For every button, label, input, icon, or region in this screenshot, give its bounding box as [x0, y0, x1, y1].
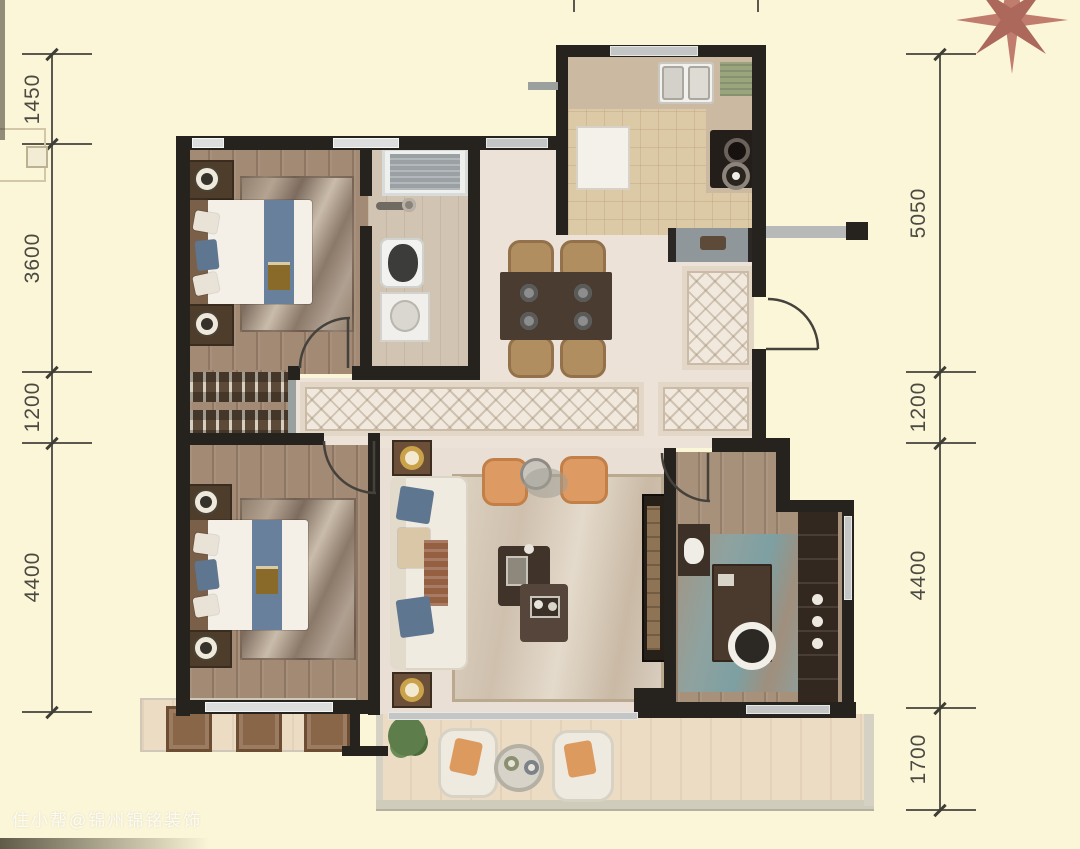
- bookshelf-decor-3: [812, 638, 823, 649]
- dining-chair-4: [560, 336, 606, 378]
- tv-console-wood: [647, 506, 660, 650]
- dim-tick: [22, 53, 92, 55]
- study-desk-item: [718, 574, 734, 586]
- toilet-lid: [388, 244, 418, 282]
- window-study-east: [844, 516, 852, 600]
- wall-west: [176, 136, 190, 716]
- dim-line-left: [51, 54, 53, 713]
- dim-label-left-2: 1200: [21, 382, 45, 433]
- bedroom1-lamp-bottom-icon: [196, 313, 218, 335]
- sofa-pillow-blue-1: [396, 486, 435, 525]
- bedroom2-lamp-top-icon: [195, 491, 217, 513]
- wall-small-balcony-v: [350, 704, 360, 752]
- wardrobe-rack-top: [190, 372, 288, 402]
- wall-hall-top-b: [352, 366, 480, 380]
- bedroom2-pillow-1: [193, 532, 220, 555]
- dim-label-right-3: 1700: [907, 734, 931, 785]
- stove-burner-2: [722, 162, 750, 190]
- window-dining-north: [486, 138, 548, 148]
- wall-east-upper: [752, 45, 766, 297]
- wall-bedroom2-north: [176, 433, 324, 445]
- dim-top-tick-b: [757, 0, 759, 12]
- bedroom2-lamp-bottom-icon: [195, 637, 217, 659]
- window-bedroom1-a: [192, 138, 224, 148]
- bookshelf-decor-2: [812, 616, 823, 627]
- dim-tick: [22, 371, 92, 373]
- wall-bathroom-east: [468, 150, 480, 380]
- dim-tick: [22, 711, 92, 713]
- dim-label-right-0: 5050: [907, 188, 931, 239]
- balcony-parapet-left: [376, 714, 383, 806]
- window-study-south: [746, 705, 830, 714]
- dim-label-right-2: 4400: [907, 550, 931, 601]
- wall-small-balcony-h: [342, 746, 388, 756]
- wall-hall-top-a: [288, 366, 300, 380]
- wall-bath-divider-b: [360, 226, 372, 372]
- floor-plan-canvas: 1450 3600 1200 4400 5050 1200 4400 1700 …: [0, 0, 1080, 849]
- window-bedroom2-south: [205, 702, 333, 712]
- coffee-table-tray-1: [506, 556, 528, 586]
- stove-burner-1: [724, 138, 750, 164]
- bedroom1-bed: [206, 200, 312, 304]
- sink-basin-icon: [390, 300, 420, 332]
- dining-place-1: [520, 284, 538, 302]
- balcony-chair-2-cushion: [563, 740, 596, 778]
- balcony-plate-2: [524, 760, 539, 775]
- bedroom2-bed-tray: [256, 566, 278, 594]
- edge-symbol-square: [26, 146, 48, 168]
- dim-top-tick-a: [573, 0, 575, 12]
- dim-line-right: [939, 54, 941, 811]
- dining-place-4: [574, 312, 592, 330]
- edge-shadow-left: [0, 0, 5, 140]
- wall-bedroom2-east: [368, 433, 380, 715]
- entry-rug: [682, 266, 754, 370]
- window-bedroom1-b: [333, 138, 399, 148]
- ledge-entry-cap: [846, 222, 868, 240]
- dim-label-left-3: 4400: [21, 552, 45, 603]
- bedroom1-pillow-1: [192, 210, 219, 234]
- study-bookshelf: [798, 512, 838, 704]
- dining-place-2: [574, 284, 592, 302]
- coffee-table-cup-2: [534, 600, 543, 609]
- sink-basin-left: [662, 66, 684, 100]
- balcony-sliding-door: [388, 712, 638, 720]
- coffee-table-cup-1: [524, 544, 534, 554]
- dim-label-right-1: 1200: [907, 382, 931, 433]
- dining-table: [500, 272, 612, 340]
- dining-chair-3: [508, 336, 554, 378]
- window-kitchen: [610, 46, 698, 56]
- study-desk-chair-icon: [728, 622, 776, 670]
- hall-runner-rug-a: [300, 382, 644, 436]
- balcony-plant-icon: [388, 716, 426, 756]
- dining-place-3: [520, 312, 538, 330]
- edge-shadow-bottom: [0, 838, 210, 849]
- bedroom1-bed-tray: [268, 262, 290, 290]
- balcony-parapet-right: [864, 714, 874, 806]
- bedroom1-lamp-top-icon: [196, 168, 218, 190]
- ledge-entry: [766, 226, 850, 238]
- sink-basin-right: [688, 66, 710, 100]
- wall-kitchen-west: [556, 45, 568, 235]
- dim-tick: [22, 442, 92, 444]
- entry-door-arc: [766, 299, 818, 349]
- wall-bath-divider-a: [360, 150, 372, 196]
- bathtub-icon: [390, 154, 460, 190]
- entry-cabinet-decor: [700, 236, 726, 250]
- balcony-plate-1: [504, 756, 519, 771]
- bookshelf-decor-1: [812, 594, 823, 605]
- coffee-table-cup-3: [548, 602, 557, 611]
- kitchen-table: [578, 128, 628, 188]
- dim-label-left-1: 3600: [21, 233, 45, 284]
- ledge-kitchen-west: [528, 82, 558, 90]
- dim-label-left-0: 1450: [21, 74, 45, 125]
- kitchen-drainboard: [720, 62, 752, 96]
- watermark-text: 住小帮@锦州锦铭装饰: [12, 806, 202, 831]
- wall-east-below-door: [752, 349, 766, 448]
- living-lamp-top-icon: [400, 446, 424, 470]
- balcony-parapet-bottom: [376, 800, 874, 809]
- hall-runner-rug-b: [658, 382, 754, 436]
- living-plant-shadow: [524, 468, 568, 498]
- bedroom2-pillow-2: [192, 594, 219, 618]
- wall-closet-right: [288, 380, 296, 438]
- living-lamp-bottom-icon: [400, 678, 424, 702]
- sofa-pillow-blue-2: [396, 596, 435, 638]
- study-chair-cushion: [684, 538, 704, 564]
- bedroom2-pillow-blue: [194, 559, 219, 591]
- compass-rose-icon: [956, 0, 1068, 74]
- towel-ring-icon: [402, 198, 416, 212]
- bedroom1-pillow-blue: [194, 239, 219, 271]
- wall-living-study-divider: [664, 448, 676, 702]
